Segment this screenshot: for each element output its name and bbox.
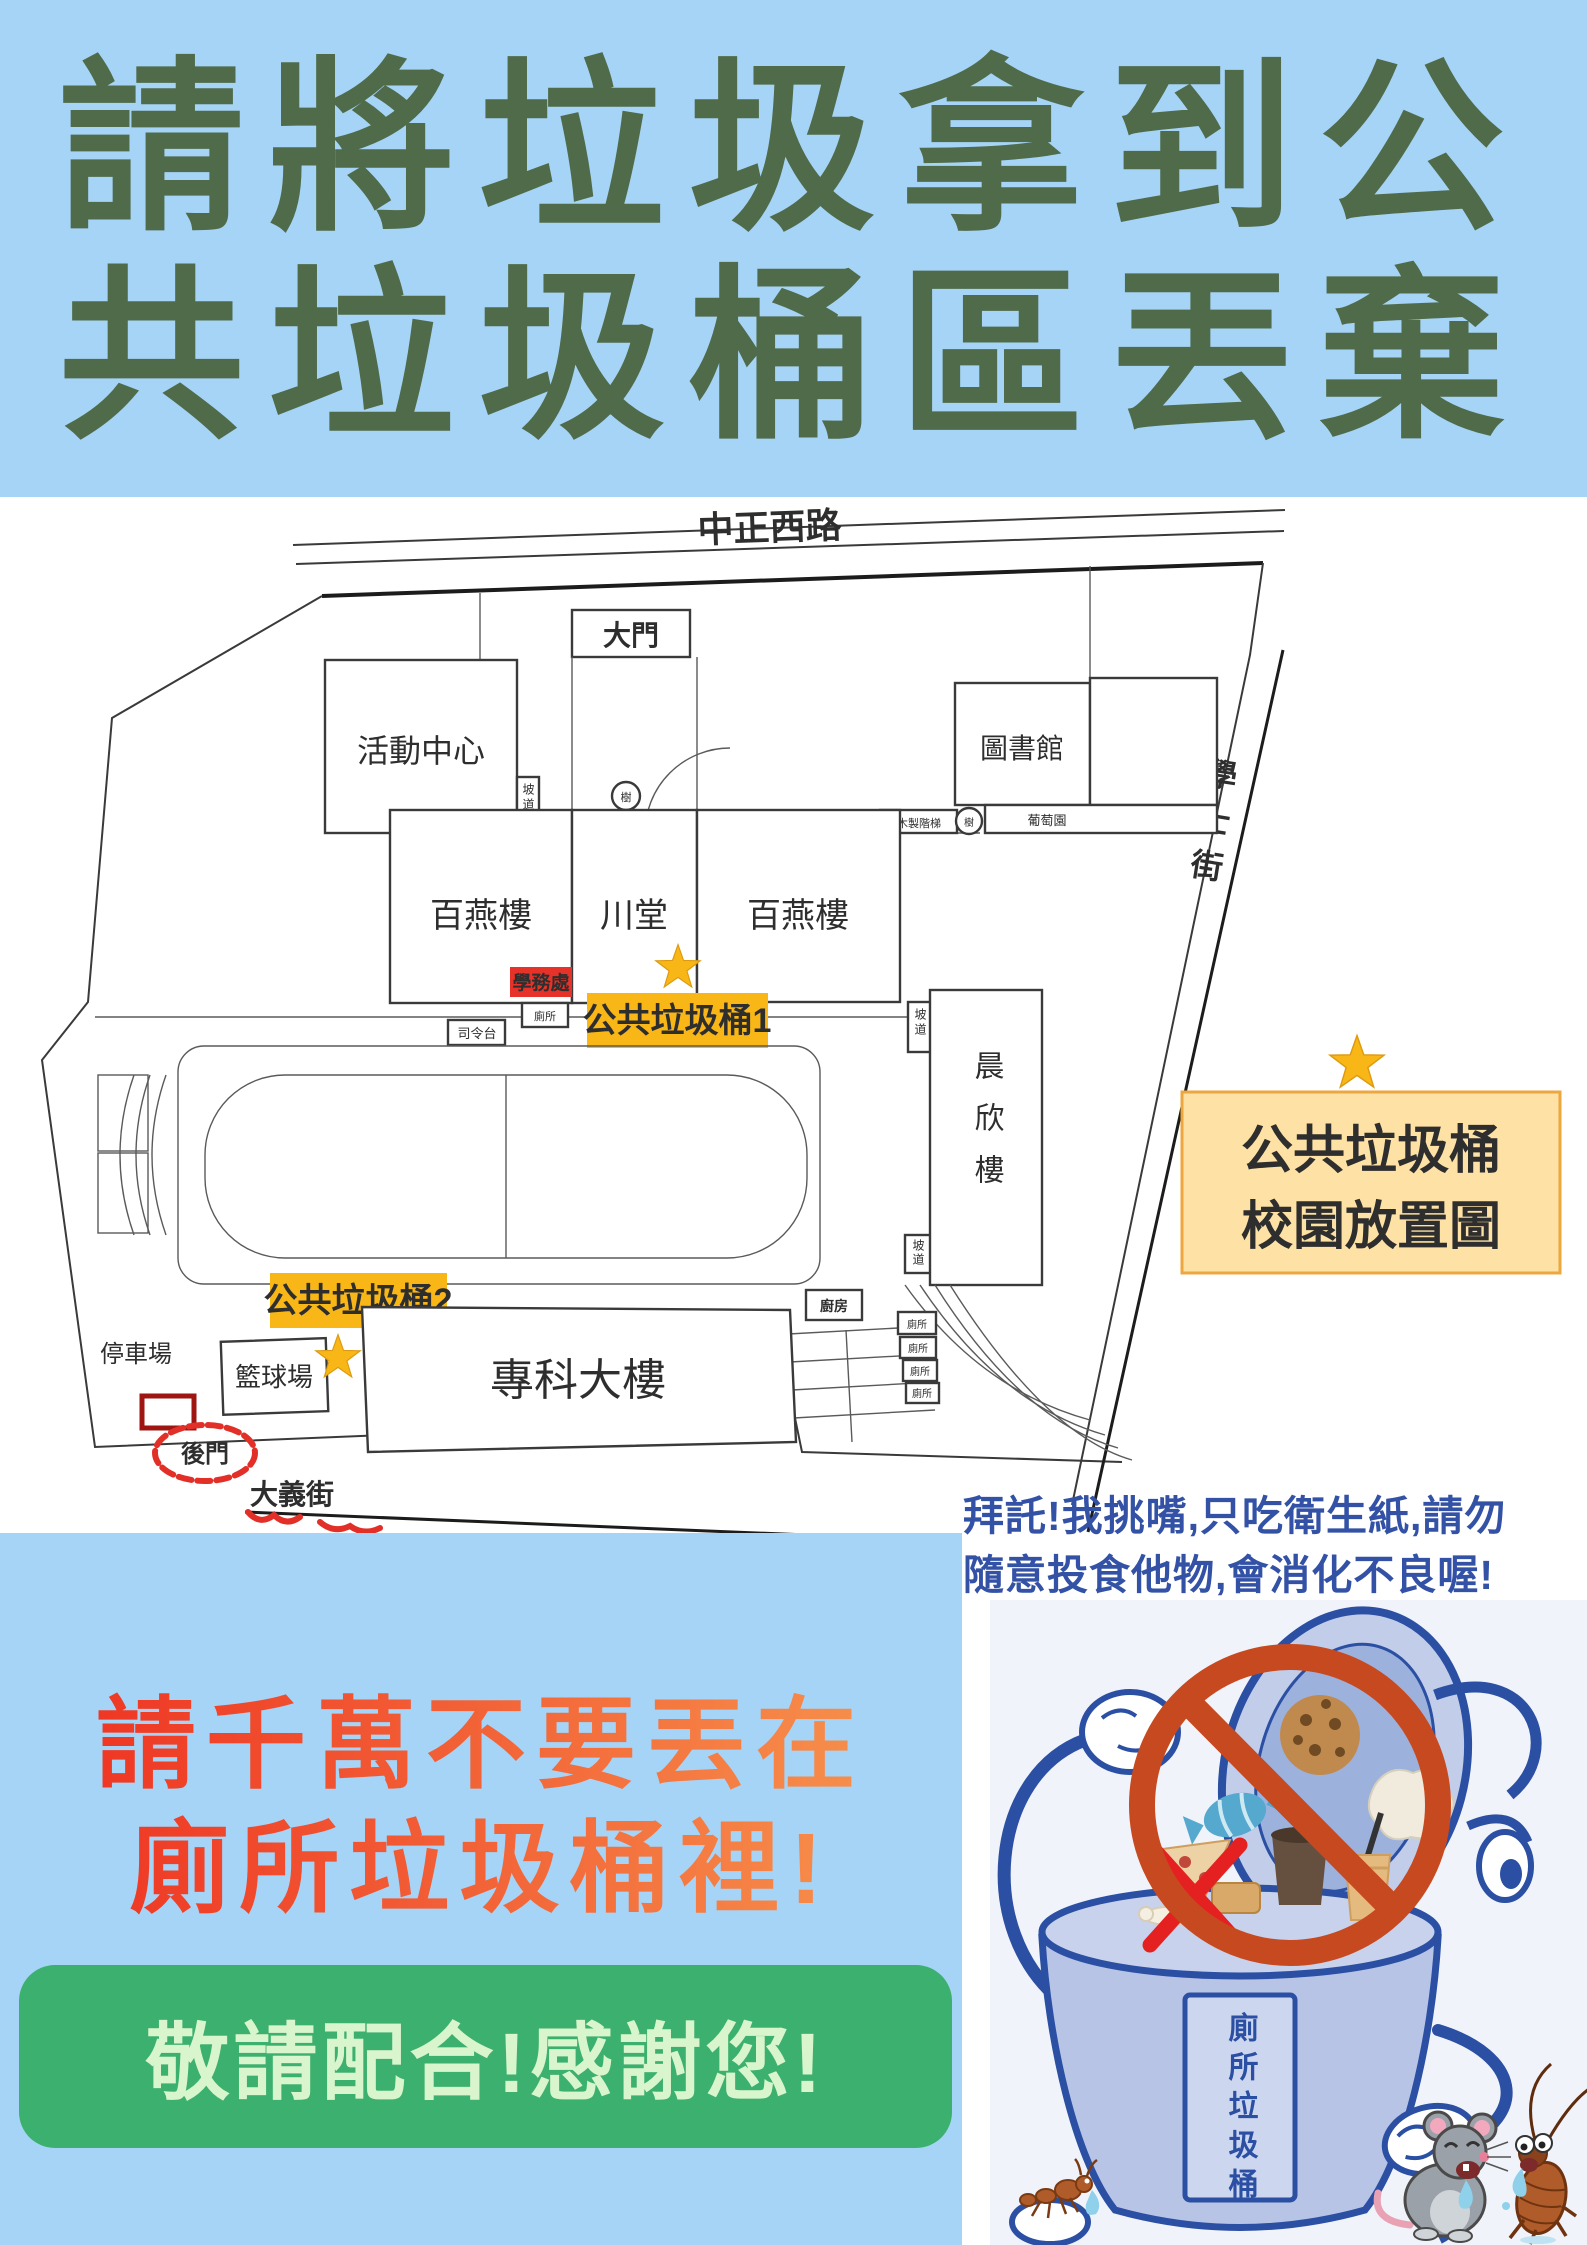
baiyan-right-label: 百燕樓 (747, 897, 849, 935)
kitchen-label: 廚房 (820, 1298, 848, 1315)
garden-strip (985, 805, 1217, 833)
legend-star (1330, 1036, 1384, 1088)
toilet-label-main: 廁所 (534, 1009, 556, 1023)
poster-title-line2: 共垃圾桶區丟棄 (0, 254, 1587, 462)
back-gate: 後門 (155, 1425, 255, 1481)
main-gate: 大門 (572, 610, 690, 657)
thanks-label: 敬請配合!感謝您! (146, 1996, 826, 2117)
street-bottom-label: 大義街 (250, 1478, 334, 1510)
speech-line2: 隨意投食他物,會消化不良喔! (963, 1546, 1587, 1605)
garden-label: 葡萄園 (1027, 813, 1066, 828)
main-gate-label: 大門 (603, 620, 659, 651)
tree-label-1: 樹 (621, 791, 632, 804)
top-banner: 請將垃圾拿到公 共垃圾桶區丟棄 (0, 0, 1587, 497)
poster-title-line1: 請將垃圾拿到公 (0, 46, 1587, 254)
ramp-label-2: 坡道 (913, 1008, 927, 1038)
warning-text: 請千萬不要丟在 廁所垃圾桶裡! (0, 1683, 962, 1931)
poster-root: 請將垃圾拿到公 共垃圾桶區丟棄 中正西路 學士街 大門 (0, 0, 1587, 2245)
speech-line1: 拜託!我挑嘴,只吃衛生紙,請勿 (963, 1487, 1587, 1546)
warning-line2: 廁所垃圾桶裡! (0, 1807, 962, 1931)
thanks-box: 敬請配合!感謝您! (19, 1965, 952, 2148)
bin-label-text: 廁所垃圾桶 (1224, 2011, 1259, 2207)
svg-text:廁所: 廁所 (910, 1365, 930, 1378)
ramp-label-1: 坡道 (521, 783, 535, 813)
chenxin-label: 晨欣樓 (970, 1050, 1005, 1206)
cockroach-icon (1502, 2064, 1587, 2244)
student-affairs-label: 學務處 (512, 971, 570, 994)
cockroach-drool (1513, 2168, 1527, 2197)
running-track (98, 1046, 820, 1284)
tree-label-2: 樹 (964, 816, 974, 829)
toilet-bin-illustration: 廁所垃圾桶 (990, 1600, 1587, 2245)
svg-text:廁所: 廁所 (912, 1387, 932, 1400)
curved-paths (905, 1285, 1132, 1460)
wooden-stairs-label: 木製階梯 (897, 816, 941, 830)
map-legend: 公共垃圾桶 校園放置圖 (1182, 1036, 1560, 1274)
bin1-label: 公共垃圾桶1 (583, 1002, 772, 1040)
street-top-label: 中正西路 (697, 504, 843, 550)
cookie-icon (1280, 1695, 1360, 1775)
baiyan-left-label: 百燕樓 (430, 897, 532, 935)
library-label: 圖書館 (980, 733, 1064, 765)
chuantang-label: 川堂 (600, 897, 668, 935)
back-gate-label: 後門 (181, 1440, 229, 1468)
building-unlabeled (1090, 678, 1217, 805)
toilet-stack: 廁所 廁所 廁所 廁所 (898, 1312, 939, 1403)
street-top-group: 中正西路 (293, 504, 1285, 596)
campus-map: 中正西路 學士街 大門 活動中心 圖書館 (0, 490, 1587, 1537)
stage-label: 司令台 (457, 1026, 496, 1041)
legend-line1: 公共垃圾桶 (1241, 1122, 1501, 1180)
ramp-label-3: 坡道 (911, 1239, 925, 1267)
zhuanke-label: 專科大樓 (490, 1356, 666, 1405)
bin-eye (1479, 1832, 1531, 1900)
bottom-left-panel: 請千萬不要丟在 廁所垃圾桶裡! 敬請配合!感謝您! (0, 1533, 962, 2245)
bin-speech-text: 拜託!我挑嘴,只吃衛生紙,請勿 隨意投食他物,會消化不良喔! (963, 1487, 1587, 1606)
svg-text:廁所: 廁所 (908, 1342, 928, 1355)
poster-title: 請將垃圾拿到公 共垃圾桶區丟棄 (0, 0, 1587, 463)
warning-line1: 請千萬不要丟在 (0, 1683, 962, 1807)
svg-text:廁所: 廁所 (907, 1318, 927, 1331)
activity-center-label: 活動中心 (357, 733, 485, 769)
legend-line2: 校園放置圖 (1241, 1198, 1501, 1256)
parking-label: 停車場 (100, 1341, 172, 1368)
red-marker-rect (142, 1396, 194, 1428)
basketball-label: 籃球場 (235, 1362, 313, 1392)
ant-drool (1086, 2190, 1099, 2215)
